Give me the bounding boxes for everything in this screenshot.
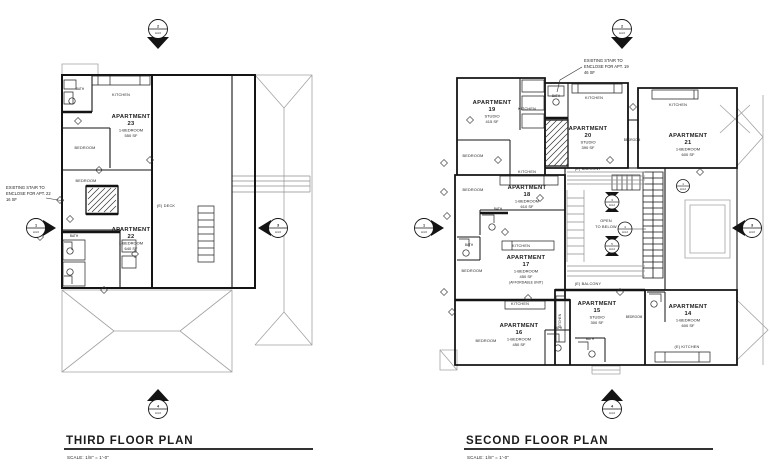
third-elev-left-sheet: A4.0 [33, 230, 39, 234]
apartment-22-label: APARTMENT 22 1-BEDROOM 640 SF [112, 227, 151, 251]
second-toilet6-icon [651, 301, 657, 307]
apt18-name: APARTMENT [508, 185, 547, 191]
apt16-name: APARTMENT [500, 323, 539, 329]
second-anno-line2: ENCLOSE FOR APT. 19 [584, 64, 629, 69]
second-elev-marker-right: 3 A4.0 [732, 219, 762, 238]
second-elev-bottom-sheet: A4.0 [609, 411, 615, 415]
second-elev-top-num: 2 [621, 25, 623, 29]
apartment-20-label: APARTMENT 20 STUDIO 390 SF [569, 126, 608, 150]
second-toilet5-icon [589, 351, 595, 357]
second-room-bath19: BATH [552, 94, 561, 98]
third-anno-line1: EXISTING STAIR TO [6, 185, 45, 190]
apt22-type: 1-BEDROOM [119, 241, 143, 246]
third-stair-annotation: EXISTING STAIR TO ENCLOSE FOR APT. 22 16… [6, 185, 51, 202]
second-balcony-railings [567, 172, 645, 276]
second-room-bedroom18: BEDROOM [462, 188, 483, 192]
second-room-bedroom17: BEDROOM [461, 269, 482, 273]
second-room-bedroom19: BEDROOM [462, 154, 483, 158]
apt14-type: 1-BEDROOM [676, 318, 700, 323]
second-elev-right-sheet: A4.0 [749, 230, 755, 234]
second-toilet2-icon [489, 224, 495, 230]
second-elev-top-sheet: A4.0 [619, 31, 625, 35]
third-roof-lines [62, 64, 312, 372]
apt21-number: 21 [684, 140, 692, 146]
third-elev-left-num: 1 [35, 224, 37, 228]
third-elev-bottom-sheet: A4.0 [155, 411, 161, 415]
apartment-19-label: APARTMENT 19 STUDIO 415 SF [473, 100, 512, 124]
third-plan-scale: SCALE: 1/8" = 1'-0" [67, 455, 109, 460]
third-elev-marker-bottom: 4 A4.0 [147, 389, 169, 419]
third-stair-hatch [88, 188, 116, 212]
apt19-name: APARTMENT [473, 100, 512, 106]
second-balcony-bottom-label: (E) BALCONY [575, 282, 602, 286]
second-room-kitchen17: KITCHEN [512, 244, 530, 248]
third-elev-marker-left: 1 A4.0 [27, 219, 57, 238]
second-stair-hatch [545, 120, 568, 166]
second-room-bedroom15: BEDROOM [626, 315, 643, 319]
section4-sheet: A4.2 [680, 187, 686, 191]
second-toilet1-icon [553, 99, 559, 105]
apartment-23-label: APARTMENT 23 1-BEDROOM 550 SF [112, 114, 151, 138]
section-marker-2: 4 A4.2 [618, 222, 646, 236]
apt22-number: 22 [127, 234, 134, 240]
apt18-area: 610 SF [521, 204, 534, 209]
apt16-area: 450 SF [513, 342, 526, 347]
second-elev-marker-top: 2 A4.0 [611, 20, 633, 50]
apt14-area: 600 SF [682, 323, 695, 328]
section-marker-3: 5 A4.2 [605, 236, 619, 256]
second-room-kitchen19: KITCHEN [518, 107, 536, 111]
apt14-name: APARTMENT [669, 304, 708, 310]
second-room-kitchen20: KITCHEN [585, 96, 603, 100]
second-open-below-1: OPEN [600, 219, 612, 223]
third-floor-plan: KITCHEN BATH BEDROOM BEDROOM BATH (E) DE… [6, 20, 312, 419]
third-room-bedroom23: BEDROOM [74, 146, 95, 150]
apartment-15-label: APARTMENT 15 STUDIO 300 SF [578, 301, 617, 325]
third-plan-titleblock: THIRD FLOOR PLAN SCALE: 1/8" = 1'-0" [64, 435, 313, 460]
third-elev-right-sheet: A4.0 [275, 230, 281, 234]
apt21-type: 1-BEDROOM [676, 147, 700, 152]
drawing-sheet: KITCHEN BATH BEDROOM BEDROOM BATH (E) DE… [0, 0, 770, 474]
section1-sheet: A4.2 [609, 203, 615, 207]
apt16-type: 1-BEDROOM [507, 337, 531, 342]
second-room-bath17: BATH [465, 243, 474, 247]
second-courtyard-stair [643, 172, 663, 278]
second-room-kitchen15: KITCHEN [558, 313, 562, 328]
second-anno-line1: EXISTING STAIR TO [584, 58, 623, 63]
second-room-kitchen16: KITCHEN [511, 302, 529, 306]
apt23-area: 550 SF [125, 133, 138, 138]
apt21-name: APARTMENT [669, 133, 708, 139]
apartment-16-label: APARTMENT 16 1-BEDROOM 450 SF [500, 323, 539, 347]
second-room-kitchen21: KITCHEN [669, 103, 687, 107]
apt17-type: 1-BEDROOM [514, 269, 538, 274]
third-deck-railing [232, 176, 310, 192]
apt23-name: APARTMENT [112, 114, 151, 120]
section2-sheet: A4.2 [622, 230, 628, 234]
second-balcony-top-label: (E) BALCONY [575, 167, 602, 171]
apt18-number: 18 [523, 192, 531, 198]
section-marker-4: 1 A4.2 [677, 180, 690, 193]
apt15-number: 15 [593, 308, 601, 314]
second-room-kitchen18: KITCHEN [518, 170, 536, 174]
second-room-bedroom16: BEDROOM [475, 339, 496, 343]
second-open-below-2: TO BELOW [595, 225, 617, 229]
second-plan-scale: SCALE: 1/8" = 1'-0" [467, 455, 509, 460]
second-roof-lines [440, 95, 768, 374]
apt20-area: 390 SF [582, 145, 595, 150]
apt19-area: 415 SF [486, 119, 499, 124]
third-room-bath22: BATH [70, 234, 79, 238]
second-plan-title: SECOND FLOOR PLAN [466, 435, 608, 447]
apt22-area: 640 SF [125, 246, 138, 251]
third-elev-marker-right: 3 A4.0 [258, 219, 288, 238]
section3-sheet: A4.2 [609, 247, 615, 251]
apt20-name: APARTMENT [569, 126, 608, 132]
second-elev-marker-bottom: 4 A4.0 [601, 389, 623, 419]
third-toilet-icon [69, 98, 75, 104]
third-room-bedroom22: BEDROOM [75, 179, 96, 183]
third-elev-marker-top: 2 A4.0 [147, 20, 169, 50]
third-toilet2-icon [67, 248, 73, 254]
third-elev-right-num: 3 [277, 224, 279, 228]
second-elev-marker-left: 1 A4.0 [415, 219, 445, 238]
apt20-number: 20 [584, 133, 591, 139]
apt17-note: (AFFORDABLE UNIT) [509, 281, 543, 285]
third-toilet3-icon [67, 269, 73, 275]
apt15-name: APARTMENT [578, 301, 617, 307]
apt20-type: STUDIO [580, 140, 595, 145]
apt17-number: 17 [522, 262, 529, 268]
second-elev-right-num: 3 [751, 224, 753, 228]
third-elev-top-num: 2 [157, 25, 159, 29]
second-courtyard-walls [565, 88, 737, 290]
apt14-number: 14 [684, 311, 692, 317]
apt16-number: 16 [515, 330, 523, 336]
apt19-type: STUDIO [484, 114, 499, 119]
third-anno-line2: ENCLOSE FOR APT. 22 [6, 191, 51, 196]
apt15-area: 300 SF [591, 320, 604, 325]
apartment-14-label: APARTMENT 14 1-BEDROOM 600 SF [669, 304, 708, 328]
third-room-deck: (E) DECK [157, 204, 176, 208]
third-room-bath23: BATH [76, 87, 85, 91]
third-room-kitchen: KITCHEN [112, 93, 130, 97]
second-room-bath18: BATH [494, 207, 503, 211]
floor-plan-drawing: KITCHEN BATH BEDROOM BEDROOM BATH (E) DE… [0, 0, 770, 474]
apartment-18-label: APARTMENT 18 1-BEDROOM 610 SF [508, 185, 547, 209]
apt15-type: STUDIO [589, 315, 604, 320]
second-elev-left-sheet: A4.0 [421, 230, 427, 234]
third-plan-title: THIRD FLOOR PLAN [66, 435, 193, 447]
second-room-bath15: BATH [586, 337, 595, 341]
second-room-bedroom20: BEDROOM [624, 138, 641, 142]
third-anno-line3: 16 SF [6, 197, 17, 202]
apt17-area: 450 SF [520, 274, 533, 279]
second-anno-line3: 46 SF [584, 70, 595, 75]
apt17-name: APARTMENT [507, 255, 546, 261]
section-marker-1: 3 A4.2 [605, 192, 619, 212]
apt23-number: 23 [127, 121, 135, 127]
apt19-number: 19 [488, 107, 496, 113]
second-elev-left-num: 1 [423, 224, 425, 228]
apartment-21-label: APARTMENT 21 1-BEDROOM 600 SF [669, 133, 708, 157]
apt22-name: APARTMENT [112, 227, 151, 233]
second-door-tags [441, 104, 704, 316]
apartment-17-label: APARTMENT 17 1-BEDROOM 450 SF (AFFORDABL… [507, 255, 546, 285]
apt23-type: 1-BEDROOM [119, 128, 143, 133]
second-plan-titleblock: SECOND FLOOR PLAN SCALE: 1/8" = 1'-0" [464, 435, 713, 460]
second-floor-plan: KITCHEN BATH BEDROOM KITCHEN KITCHEN BED… [415, 20, 769, 419]
apt18-type: 1-BEDROOM [515, 199, 539, 204]
second-stair-annotation: EXISTING STAIR TO ENCLOSE FOR APT. 19 46… [584, 58, 629, 75]
third-elev-top-sheet: A4.0 [155, 31, 161, 35]
second-room-kitchen14: (E) KITCHEN [675, 345, 700, 349]
second-toilet3-icon [463, 250, 469, 256]
apt21-area: 600 SF [682, 152, 695, 157]
